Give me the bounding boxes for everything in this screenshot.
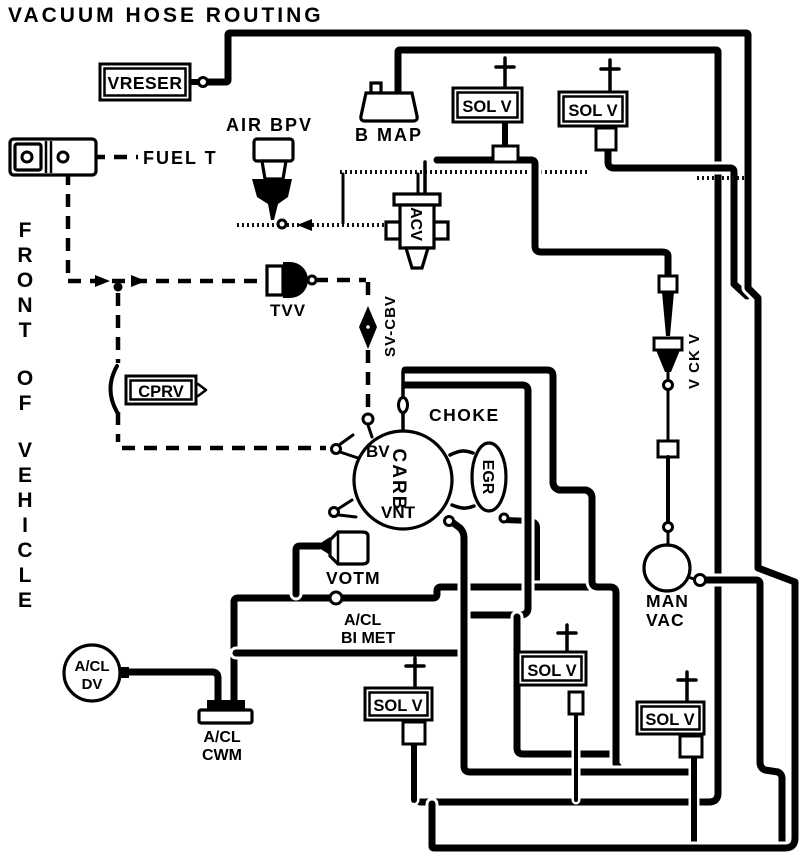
front-of-vehicle-letter: F <box>19 219 32 242</box>
air-bpv-label: AIR BPV <box>226 115 313 135</box>
front-of-vehicle-letter: N <box>17 294 32 317</box>
front-of-vehicle-letter: L <box>19 564 32 587</box>
solv5-fitting <box>680 736 702 757</box>
tvv-component: TVV <box>267 262 316 320</box>
acl-cwm-label: A/CL <box>203 729 241 746</box>
air-bpv-port-icon <box>278 220 286 228</box>
b-map-label: B MAP <box>355 125 423 145</box>
checkvalve-coupler-icon <box>658 441 678 457</box>
flow-arrow-icon <box>131 275 146 287</box>
check-valve-column: V CK V <box>654 276 703 545</box>
solv-label: SOL V <box>645 711 694 729</box>
svcbv-carb-tail <box>368 425 372 437</box>
cprv-component: CPRV <box>111 366 207 412</box>
diagram-title: VACUUM HOSE ROUTING <box>8 4 324 27</box>
carb-component: BV CARB VNT <box>330 372 454 529</box>
fuel-t-label: FUEL T <box>143 148 218 168</box>
solv2-antenna-icon <box>601 60 619 92</box>
carb-bv-label: BV <box>366 442 390 461</box>
front-of-vehicle-letter: I <box>22 514 28 537</box>
votm-component: VOTM <box>316 532 381 588</box>
acl-cwm-component: A/CL CWM <box>199 700 252 764</box>
bimet-junction-icon <box>330 592 342 604</box>
flow-arrow-icon <box>95 275 110 287</box>
cprv-nipple-icon <box>198 384 206 396</box>
sv-cbv-port-icon <box>363 414 373 424</box>
b-map-component: B MAP <box>355 83 423 145</box>
vreser-port-icon <box>199 78 208 87</box>
carb-lower-port-icon <box>330 508 339 517</box>
vacuum-hose-routing-diagram: VACUUM HOSE ROUTING FRONTOFVEHICLE <box>0 0 800 864</box>
front-of-vehicle-label: FRONTOFVEHICLE <box>17 219 33 612</box>
solv1-component: SOL V <box>453 58 522 162</box>
hose-solv1-to-checkvalve <box>437 160 668 278</box>
svg-text:VAC: VAC <box>646 610 685 630</box>
carb-label: CARB <box>388 449 409 512</box>
tvv-label: TVV <box>270 301 306 320</box>
egr-label: EGR <box>479 460 496 495</box>
cprv-label: CPRV <box>138 383 184 401</box>
cprv-clip <box>111 366 118 412</box>
solv1-tee-fitting <box>493 146 518 162</box>
solv-label: SOL V <box>568 102 617 120</box>
svg-text:CWM: CWM <box>202 747 242 764</box>
acl-dv-label: A/CL <box>75 658 110 675</box>
man-vac-port-icon <box>695 575 706 586</box>
solv5-component: SOL V <box>637 672 704 757</box>
egr-component: EGR <box>450 443 508 522</box>
air-bpv-component: AIR BPV <box>226 115 313 228</box>
solv2-component: SOL V <box>559 60 627 150</box>
front-of-vehicle-letter: T <box>19 319 32 342</box>
votm-label: VOTM <box>326 568 381 588</box>
front-of-vehicle-letter: E <box>18 589 32 612</box>
sv-cbv-component: SV-CBV <box>359 295 399 424</box>
front-of-vehicle-letter: H <box>17 489 32 512</box>
carb-vnt-port-icon <box>445 517 454 526</box>
egr-neck <box>450 451 474 508</box>
v-ck-v-label: V CK V <box>686 333 703 389</box>
solv4-fitting <box>569 692 583 714</box>
fuel-t-port-icon <box>58 152 68 162</box>
checkvalve-coupler-icon <box>659 276 677 292</box>
solv4-antenna-icon <box>558 625 576 652</box>
carb-upper-port-icon <box>332 445 341 454</box>
tvv-port-icon <box>308 276 316 284</box>
solv3-antenna-icon <box>406 658 424 688</box>
choke-label: CHOKE <box>429 405 500 425</box>
front-of-vehicle-letter: V <box>18 439 32 462</box>
solv5-antenna-icon <box>678 672 696 702</box>
svg-text:A/CL: A/CL <box>344 612 382 629</box>
acl-dv-component: A/CL DV <box>64 645 129 701</box>
svg-text:BI MET: BI MET <box>341 630 395 647</box>
solv1-antenna-icon <box>496 58 514 88</box>
sv-cbv-label: SV-CBV <box>382 295 399 357</box>
svg-text:DV: DV <box>82 676 103 693</box>
fuel-t-component: FUEL T <box>10 139 218 175</box>
man-vac-component: MAN VAC <box>644 545 706 630</box>
solv2-fitting <box>596 128 616 150</box>
front-of-vehicle-letter: C <box>17 539 32 562</box>
solv-label: SOL V <box>462 98 511 116</box>
front-of-vehicle-letter: R <box>17 244 32 267</box>
carb-vnt-label: VNT <box>381 503 416 522</box>
front-of-vehicle-letter: O <box>17 367 33 390</box>
vreser-label: VRESER <box>108 73 183 93</box>
solv-label: SOL V <box>373 697 422 715</box>
flow-arrow-left-icon <box>297 219 312 231</box>
carb-top-bead <box>399 398 408 413</box>
front-of-vehicle-letter: F <box>19 392 32 415</box>
man-vac-body <box>644 545 690 591</box>
front-of-vehicle-letter: E <box>18 464 32 487</box>
vreser-component: VRESER <box>100 64 208 100</box>
solv3-fitting <box>403 722 425 744</box>
solv-label: SOL V <box>527 662 576 680</box>
fuel-t-port-icon <box>22 152 32 162</box>
egr-port-icon <box>500 514 508 522</box>
man-vac-label: MAN <box>646 591 689 611</box>
acv-label: ACV <box>407 207 424 241</box>
dashed-junction-dot <box>114 283 123 292</box>
front-of-vehicle-letter: O <box>17 269 33 292</box>
solv4-component: SOL V <box>518 625 586 714</box>
acl-bimet-label: A/CL BI MET <box>341 612 395 647</box>
checkvalve-funnel-icon <box>656 350 680 372</box>
solv3-component: SOL V <box>365 658 432 744</box>
